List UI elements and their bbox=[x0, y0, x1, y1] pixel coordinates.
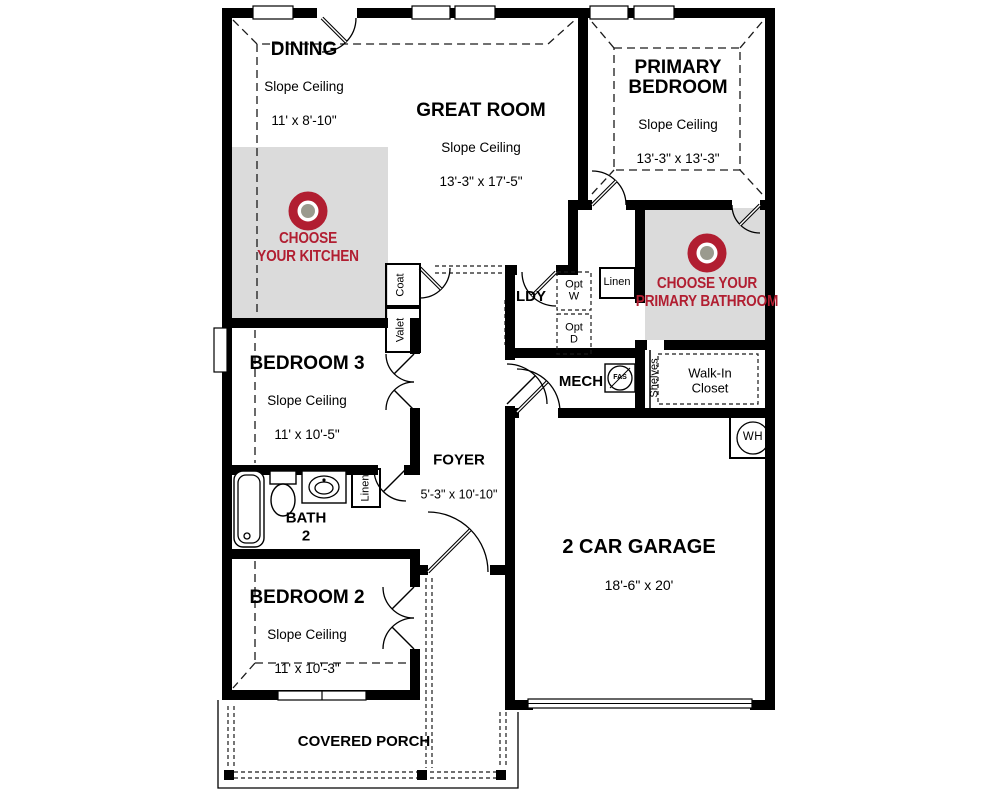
room-label-foyer: FOYER 5'-3" x 10'-10" bbox=[421, 434, 498, 521]
foyer-name: FOYER bbox=[421, 453, 498, 469]
room-label-laundry: LDY bbox=[516, 288, 546, 306]
bedroom2-ceiling: Slope Ceiling bbox=[249, 626, 364, 642]
room-label-covered-porch: COVERED PORCH bbox=[298, 733, 431, 751]
linen-hall-label: Linen bbox=[604, 277, 631, 289]
bedroom3-name: BEDROOM 3 bbox=[249, 354, 364, 374]
room-label-bedroom2: BEDROOM 2 Slope Ceiling 11' x 10'-3" bbox=[249, 569, 364, 695]
linen-bath-label: Linen bbox=[360, 475, 373, 502]
dining-ceiling: Slope Ceiling bbox=[264, 78, 344, 94]
bedroom3-dims: 11' x 10'-5" bbox=[249, 427, 364, 443]
toilet-tank bbox=[270, 471, 296, 484]
primary-bedroom-dims: 13'-3" x 13'-3" bbox=[628, 151, 727, 167]
kitchen-target-icon bbox=[293, 196, 323, 226]
opt-dryer-label: Opt D bbox=[565, 322, 583, 345]
water-heater-label: WH bbox=[743, 431, 763, 445]
door-bedroom3-double bbox=[386, 354, 414, 410]
room-label-walk-in-closet: Walk-In Closet bbox=[688, 366, 732, 397]
garage-name: 2 CAR GARAGE bbox=[562, 537, 715, 558]
porch-post bbox=[224, 770, 234, 780]
choose-primary-bathroom-badge[interactable]: CHOOSE YOUR PRIMARY BATHROOM bbox=[636, 275, 778, 311]
valet-label: Valet bbox=[395, 318, 408, 342]
primary-bedroom-name: PRIMARY BEDROOM bbox=[628, 58, 727, 98]
door-bath2 bbox=[374, 469, 406, 501]
porch-post bbox=[417, 770, 427, 780]
great-room-name: GREAT ROOM bbox=[416, 101, 545, 121]
porch-post bbox=[496, 770, 506, 780]
window-primary-1 bbox=[590, 6, 628, 19]
fas-label: FAS bbox=[613, 374, 627, 382]
foyer-dims: 5'-3" x 10'-10" bbox=[421, 487, 498, 501]
window-bedroom3 bbox=[214, 328, 227, 372]
faucet bbox=[322, 478, 325, 481]
bedroom2-name: BEDROOM 2 bbox=[249, 588, 364, 608]
room-label-primary-bedroom: PRIMARY BEDROOM Slope Ceiling 13'-3" x 1… bbox=[628, 39, 727, 185]
bedroom3-ceiling: Slope Ceiling bbox=[249, 392, 364, 408]
door-mech bbox=[507, 364, 547, 404]
door-bedroom2-double bbox=[383, 587, 414, 649]
room-label-great-room: GREAT ROOM Slope Ceiling 13'-3" x 17'-5" bbox=[416, 82, 545, 208]
great-room-ceiling: Slope Ceiling bbox=[416, 139, 545, 155]
primary-bathroom-selection-zone[interactable] bbox=[645, 208, 773, 340]
garage-dims: 18'-6" x 20' bbox=[562, 577, 715, 593]
floor-plan: DINING Slope Ceiling 11' x 8'-10" GREAT … bbox=[0, 0, 1000, 800]
coat-label: Coat bbox=[395, 273, 408, 296]
room-label-dining: DINING Slope Ceiling 11' x 8'-10" bbox=[264, 21, 344, 147]
choose-kitchen-badge[interactable]: CHOOSE YOUR KITCHEN bbox=[257, 230, 359, 266]
bedroom2-dims: 11' x 10'-3" bbox=[249, 661, 364, 677]
door-garage-entry bbox=[517, 369, 560, 412]
window-dining bbox=[253, 6, 293, 19]
window-primary-2 bbox=[634, 6, 674, 19]
primary-bedroom-ceiling: Slope Ceiling bbox=[628, 116, 727, 132]
room-label-garage: 2 CAR GARAGE 18'-6" x 20' bbox=[562, 518, 715, 612]
room-label-bath2: BATH 2 bbox=[286, 509, 327, 544]
dining-dims: 11' x 8'-10" bbox=[264, 113, 344, 129]
shelves-label: Shelves bbox=[649, 358, 662, 397]
window-great-room-1 bbox=[412, 6, 450, 19]
opt-washer-label: Opt W bbox=[565, 279, 583, 302]
window-great-room-2 bbox=[455, 6, 495, 19]
dining-name: DINING bbox=[264, 40, 344, 60]
primary-bathroom-target-icon bbox=[692, 238, 722, 268]
room-label-bedroom3: BEDROOM 3 Slope Ceiling 11' x 10'-5" bbox=[249, 335, 364, 461]
door-front-entry bbox=[428, 512, 488, 572]
great-room-dims: 13'-3" x 17'-5" bbox=[416, 174, 545, 190]
room-label-mech: MECH bbox=[559, 373, 603, 391]
